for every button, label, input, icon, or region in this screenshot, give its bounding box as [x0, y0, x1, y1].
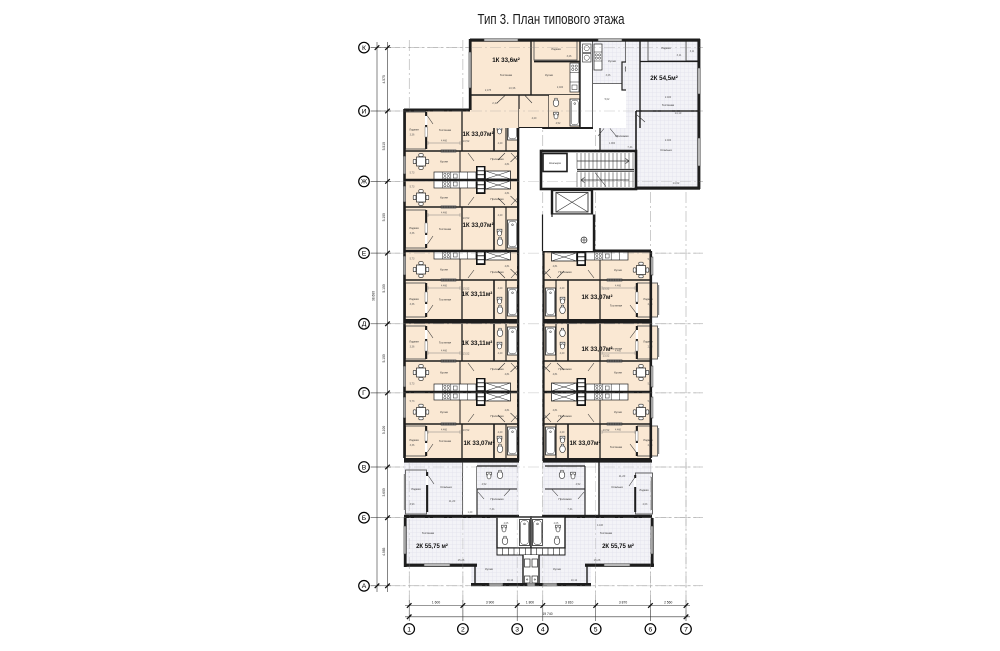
svg-text:1,20: 1,20 [468, 511, 473, 514]
svg-text:3,36: 3,36 [410, 232, 415, 235]
svg-text:2,03: 2,03 [643, 503, 648, 506]
svg-text:5.510: 5.510 [382, 142, 386, 150]
svg-text:5.100: 5.100 [382, 354, 386, 362]
svg-text:5,73: 5,73 [410, 172, 415, 175]
svg-text:4,81: 4,81 [505, 409, 510, 412]
svg-text:Гостиная: Гостиная [439, 439, 452, 443]
svg-text:4.466: 4.466 [441, 429, 448, 432]
svg-text:Лоджия: Лоджия [409, 438, 419, 442]
svg-text:3.600: 3.600 [382, 488, 386, 496]
svg-text:К: К [362, 45, 366, 52]
svg-text:7,41: 7,41 [489, 507, 495, 511]
svg-text:3,26: 3,26 [567, 55, 572, 58]
svg-text:2: 2 [461, 626, 465, 633]
svg-text:3,11: 3,11 [677, 54, 682, 57]
svg-text:Лоджия: Лоджия [411, 487, 421, 491]
svg-text:Гостиная: Гостиная [662, 103, 675, 107]
svg-text:Г: Г [362, 390, 366, 397]
svg-text:4.466: 4.466 [615, 429, 622, 432]
svg-text:Гостиная: Гостиная [610, 445, 623, 449]
svg-text:Кухня: Кухня [614, 268, 622, 272]
svg-text:5,73: 5,73 [410, 186, 415, 189]
svg-text:4,81: 4,81 [505, 192, 510, 195]
svg-text:1К 33,07м²: 1К 33,07м² [581, 294, 612, 301]
svg-text:13,52: 13,52 [463, 216, 470, 220]
svg-text:Д: Д [362, 321, 367, 328]
svg-text:Кухня: Кухня [440, 160, 448, 164]
svg-text:5,73: 5,73 [410, 383, 415, 386]
svg-text:4,81: 4,81 [505, 373, 510, 376]
svg-text:10,12: 10,12 [507, 579, 514, 582]
svg-text:2,400: 2,400 [557, 86, 564, 89]
svg-text:Прихожая: Прихожая [559, 367, 572, 371]
svg-text:13,36: 13,36 [509, 86, 516, 90]
svg-text:4,20: 4,20 [532, 117, 537, 120]
svg-text:1К 33,11м²: 1К 33,11м² [462, 291, 493, 298]
svg-text:Кухня: Кухня [553, 567, 561, 571]
svg-text:Б: Б [362, 515, 367, 522]
svg-text:Гостиная: Гостиная [600, 531, 613, 535]
svg-text:4,20: 4,20 [498, 352, 503, 355]
svg-text:2К 54,5м²: 2К 54,5м² [650, 75, 678, 82]
svg-text:В: В [362, 464, 367, 471]
svg-text:4,20: 4,20 [498, 287, 503, 290]
svg-text:38.680: 38.680 [372, 291, 376, 301]
svg-text:1К 33,07м²: 1К 33,07м² [569, 440, 600, 447]
svg-text:10,12: 10,12 [571, 579, 578, 582]
svg-text:5,73: 5,73 [410, 400, 415, 403]
svg-text:1К 33,07м²: 1К 33,07м² [463, 440, 494, 447]
svg-text:3 810: 3 810 [565, 601, 573, 605]
svg-text:3,26: 3,26 [606, 74, 611, 77]
svg-text:3,36: 3,36 [410, 346, 415, 349]
svg-text:4.466: 4.466 [441, 140, 448, 143]
svg-text:4,52: 4,52 [556, 122, 561, 125]
svg-text:3,93: 3,93 [410, 503, 415, 506]
svg-text:3,36: 3,36 [410, 303, 415, 306]
svg-text:4.466: 4.466 [441, 212, 448, 215]
svg-text:5,02: 5,02 [605, 98, 610, 101]
svg-text:Прихожая: Прихожая [491, 197, 504, 201]
svg-text:Лоджия: Лоджия [409, 128, 419, 132]
svg-text:Кухня: Кухня [440, 371, 448, 375]
svg-text:15,26: 15,26 [458, 558, 465, 562]
svg-text:5,73: 5,73 [410, 258, 415, 261]
svg-text:Лоджия: Лоджия [409, 226, 419, 230]
svg-text:Прихожая: Прихожая [491, 157, 504, 161]
svg-text:1К 33,11м²: 1К 33,11м² [462, 340, 493, 347]
svg-text:1.900: 1.900 [609, 142, 616, 145]
svg-text:13,52: 13,52 [463, 352, 470, 356]
svg-text:Лоджия: Лоджия [661, 46, 671, 50]
svg-text:4.985: 4.985 [382, 547, 386, 555]
svg-text:А: А [362, 583, 367, 590]
svg-text:Гостиная: Гостиная [439, 341, 452, 345]
svg-text:Кухня: Кухня [440, 196, 448, 200]
svg-text:5.100: 5.100 [382, 284, 386, 292]
svg-text:13,52: 13,52 [463, 139, 470, 143]
svg-text:2К 55,75 м²: 2К 55,75 м² [602, 543, 634, 550]
svg-text:4,81: 4,81 [505, 163, 510, 166]
svg-text:1 800: 1 800 [526, 601, 534, 605]
svg-text:Прихожая: Прихожая [491, 497, 504, 501]
svg-text:5: 5 [594, 626, 598, 633]
svg-text:13,52: 13,52 [463, 428, 470, 432]
svg-text:4: 4 [541, 626, 545, 633]
svg-text:Кухня: Кухня [608, 59, 616, 63]
svg-text:4.466: 4.466 [615, 285, 622, 288]
svg-text:3,36: 3,36 [410, 134, 415, 137]
svg-text:2К 55,75 м²: 2К 55,75 м² [416, 543, 448, 550]
svg-text:13,52: 13,52 [603, 287, 610, 291]
svg-text:Лоджия: Лоджия [409, 340, 419, 344]
svg-text:4,52: 4,52 [576, 483, 581, 486]
svg-text:6: 6 [649, 626, 653, 633]
svg-text:11,20: 11,20 [449, 499, 456, 503]
svg-text:4,81: 4,81 [553, 409, 558, 412]
svg-text:2.400: 2.400 [665, 139, 672, 142]
svg-text:7,41: 7,41 [567, 507, 573, 511]
svg-text:Прихожая: Прихожая [491, 270, 504, 274]
svg-text:1: 1 [407, 626, 411, 633]
svg-text:Кухня: Кухня [440, 268, 448, 272]
svg-text:3 870: 3 870 [619, 601, 627, 605]
svg-text:15,26: 15,26 [594, 558, 601, 562]
svg-text:Прихожая: Прихожая [491, 367, 504, 371]
svg-text:3 900: 3 900 [486, 601, 494, 605]
svg-text:4.466: 4.466 [615, 350, 622, 353]
svg-text:4,81: 4,81 [505, 265, 510, 268]
svg-text:13,52: 13,52 [463, 287, 470, 291]
svg-text:Лоджия: Лоджия [639, 488, 649, 492]
svg-text:Прихожая: Прихожая [491, 414, 504, 418]
svg-text:1 600: 1 600 [432, 601, 440, 605]
svg-text:Гостиная: Гостиная [422, 531, 435, 535]
svg-text:Гостиная: Гостиная [610, 304, 623, 308]
svg-text:Лоджия: Лоджия [409, 297, 419, 301]
svg-text:4,20: 4,20 [498, 214, 503, 217]
svg-text:4,81: 4,81 [553, 373, 558, 376]
svg-text:Прихожая: Прихожая [559, 497, 572, 501]
svg-text:4,20: 4,20 [560, 431, 565, 434]
svg-text:11,20: 11,20 [619, 474, 626, 478]
svg-text:5.100: 5.100 [382, 213, 386, 221]
svg-text:Прихожая: Прихожая [559, 270, 572, 274]
svg-text:4,81: 4,81 [553, 265, 558, 268]
svg-text:4,20: 4,20 [560, 352, 565, 355]
svg-text:Спальня: Спальня [660, 148, 672, 152]
svg-text:Кухня: Кухня [614, 371, 622, 375]
svg-text:1К 33,6м²: 1К 33,6м² [492, 57, 520, 64]
svg-text:Прихожая: Прихожая [616, 134, 629, 138]
svg-text:Гостиная: Гостиная [439, 227, 452, 231]
svg-text:Кухня: Кухня [614, 410, 622, 414]
svg-text:7: 7 [684, 626, 688, 633]
svg-text:Кухня: Кухня [485, 567, 493, 571]
svg-text:4,05: 4,05 [504, 522, 509, 525]
svg-text:Гостиная: Гостиная [439, 298, 452, 302]
svg-text:4,20: 4,20 [498, 142, 503, 145]
svg-text:Тип 3. План типового этажа: Тип 3. План типового этажа [478, 12, 626, 28]
svg-text:Гостиная: Гостиная [500, 73, 513, 77]
svg-text:И: И [362, 108, 367, 115]
svg-text:4,52: 4,52 [482, 483, 487, 486]
svg-text:Спальня: Спальня [440, 485, 452, 489]
svg-text:Кухня: Кухня [545, 73, 553, 77]
svg-text:Гостиная: Гостиная [439, 128, 452, 132]
svg-text:4.466: 4.466 [441, 350, 448, 353]
svg-text:4.575: 4.575 [382, 75, 386, 83]
svg-text:Кухня: Кухня [440, 410, 448, 414]
svg-text:2,475: 2,475 [485, 89, 492, 92]
svg-text:Прихожая: Прихожая [559, 414, 572, 418]
svg-text:4.466: 4.466 [441, 285, 448, 288]
svg-text:4,05: 4,05 [554, 522, 559, 525]
svg-text:3,36: 3,36 [410, 444, 415, 447]
svg-text:Консьерж: Консьерж [549, 161, 561, 165]
svg-text:13,52: 13,52 [603, 428, 610, 432]
svg-text:1К 33,07м²: 1К 33,07м² [462, 222, 493, 229]
svg-text:5.100: 5.100 [382, 426, 386, 434]
svg-text:1К 33,07м²: 1К 33,07м² [462, 131, 493, 138]
svg-text:Спальня: Спальня [611, 485, 623, 489]
svg-text:4,20: 4,20 [498, 431, 503, 434]
svg-text:2.400: 2.400 [665, 96, 672, 99]
svg-text:4.106: 4.106 [597, 524, 604, 527]
svg-text:2 560: 2 560 [664, 601, 672, 605]
svg-text:3: 3 [515, 626, 519, 633]
svg-text:4,20: 4,20 [560, 287, 565, 290]
svg-text:3,11: 3,11 [690, 50, 695, 53]
svg-text:Е: Е [362, 250, 367, 257]
svg-text:13,52: 13,52 [603, 354, 610, 358]
svg-text:1К 33,07м²: 1К 33,07м² [581, 346, 612, 353]
svg-text:19 740: 19 740 [542, 612, 552, 616]
svg-text:7,41: 7,41 [627, 145, 633, 149]
svg-text:Ж: Ж [361, 179, 368, 186]
